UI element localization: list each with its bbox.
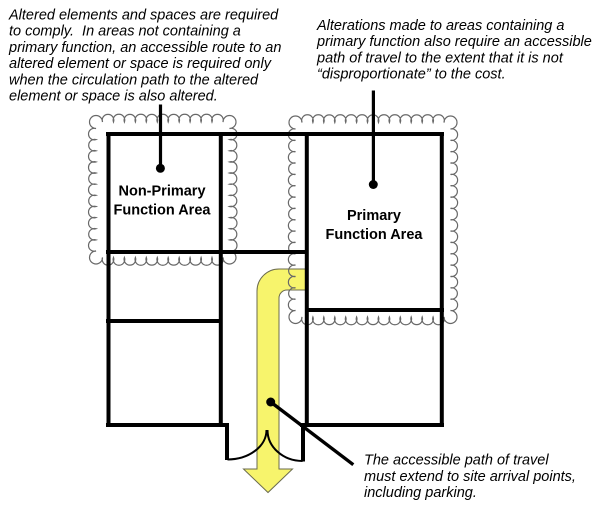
svg-text:Non-Primary: Non-Primary [118, 183, 205, 199]
svg-text:primary function, an accessibl: primary function, an accessible route to… [8, 40, 281, 56]
svg-text:Function Area: Function Area [326, 227, 424, 243]
svg-text:element or space is also alter: element or space is also altered. [9, 89, 218, 105]
svg-text:Primary: Primary [347, 208, 401, 224]
svg-text:must extend to site arrival po: must extend to site arrival points, [364, 469, 576, 485]
svg-text:Altered elements and spaces ar: Altered elements and spaces are required [8, 8, 279, 24]
svg-text:altered element or space is re: altered element or space is required onl… [9, 56, 272, 72]
svg-text:path of travel to the extent t: path of travel to the extent that it is … [316, 51, 564, 67]
svg-text:including parking.: including parking. [364, 485, 477, 501]
svg-text:when the circulation path to t: when the circulation path to the altered [9, 72, 259, 88]
svg-text:Alterations made to areas cont: Alterations made to areas containing a [316, 18, 564, 34]
svg-text:Function Area: Function Area [114, 202, 212, 218]
svg-text:“disproportionate” to the cost: “disproportionate” to the cost. [317, 67, 506, 83]
svg-text:The accessible path of travel: The accessible path of travel [364, 453, 549, 469]
svg-text:to comply. In areas not conta: to comply. In areas not containing a [9, 24, 241, 40]
svg-text:primary function also require: primary function also require an accessi… [316, 34, 592, 50]
